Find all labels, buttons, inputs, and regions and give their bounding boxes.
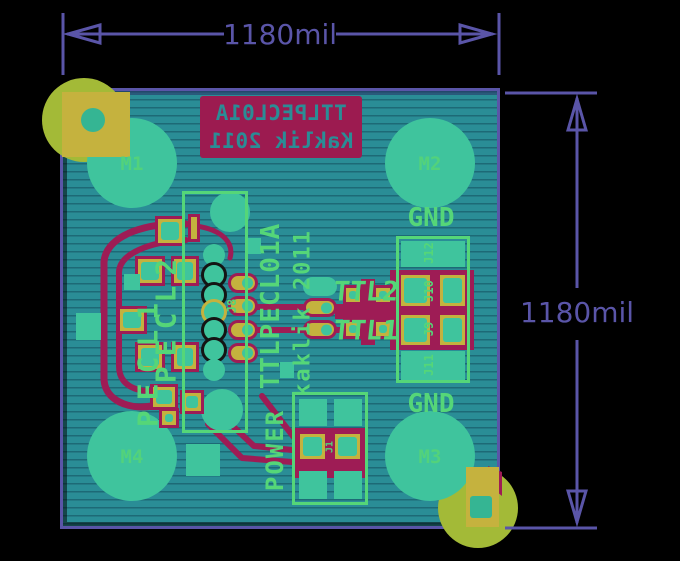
- mount-hole-label-m3: M3: [419, 446, 442, 468]
- gnd-label-top: GND: [408, 203, 455, 233]
- ref-j12-label: J12: [422, 242, 436, 264]
- ref-j10-label: J10: [422, 280, 436, 302]
- dim-arrow-up: [568, 99, 586, 130]
- dim-arrow-right: [460, 25, 492, 43]
- power-label: POWER: [261, 409, 289, 491]
- mount-hole-label-m1: M1: [121, 153, 144, 175]
- fiducial-hole-bottom-right: [470, 496, 492, 518]
- smd-pad-teal: [186, 444, 220, 476]
- silk-title-line1: TTLPECL01A: [200, 99, 362, 127]
- ttl2-label: TTL2: [332, 277, 400, 308]
- smd-pad-teal: [76, 313, 101, 340]
- pecl-pad: [155, 216, 185, 246]
- dim-label-right: 1180mil: [520, 296, 634, 329]
- silk-title-line2: Kaklik 2011: [200, 127, 362, 155]
- mount-hole-label-m2: M2: [419, 153, 442, 175]
- ref-j8-label: J8: [225, 299, 239, 313]
- fiducial-hole-top-left: [81, 108, 105, 132]
- mount-hole-label-m4: M4: [121, 446, 144, 468]
- dim-arrow-left: [68, 25, 100, 43]
- board-title-vertical: TTLPECL01A: [256, 223, 286, 390]
- ref-j1-label: J1: [325, 441, 336, 453]
- board-author-vertical: kaklik 2011: [291, 229, 316, 397]
- ttl1-label: TTL1: [332, 316, 400, 347]
- bottom-silk-text-block: TTLPECL01A Kaklik 2011: [200, 96, 362, 158]
- dim-label-top: 1180mil: [223, 18, 337, 51]
- ref-j9-label: J9: [422, 322, 436, 336]
- smd-pad-teal: [124, 274, 140, 290]
- pecl1-label: PECL1: [132, 293, 165, 427]
- dim-arrow-down: [568, 491, 586, 522]
- gnd-label-bottom: GND: [408, 389, 455, 419]
- pcb-render-stage: TTLPECL01A Kaklik 2011 M1 M2 M3 M4 GND G…: [0, 0, 680, 561]
- mirrored-text-wrap: TTLPECL01A Kaklik 2011: [200, 96, 362, 158]
- ref-j11-label: J11: [422, 354, 436, 376]
